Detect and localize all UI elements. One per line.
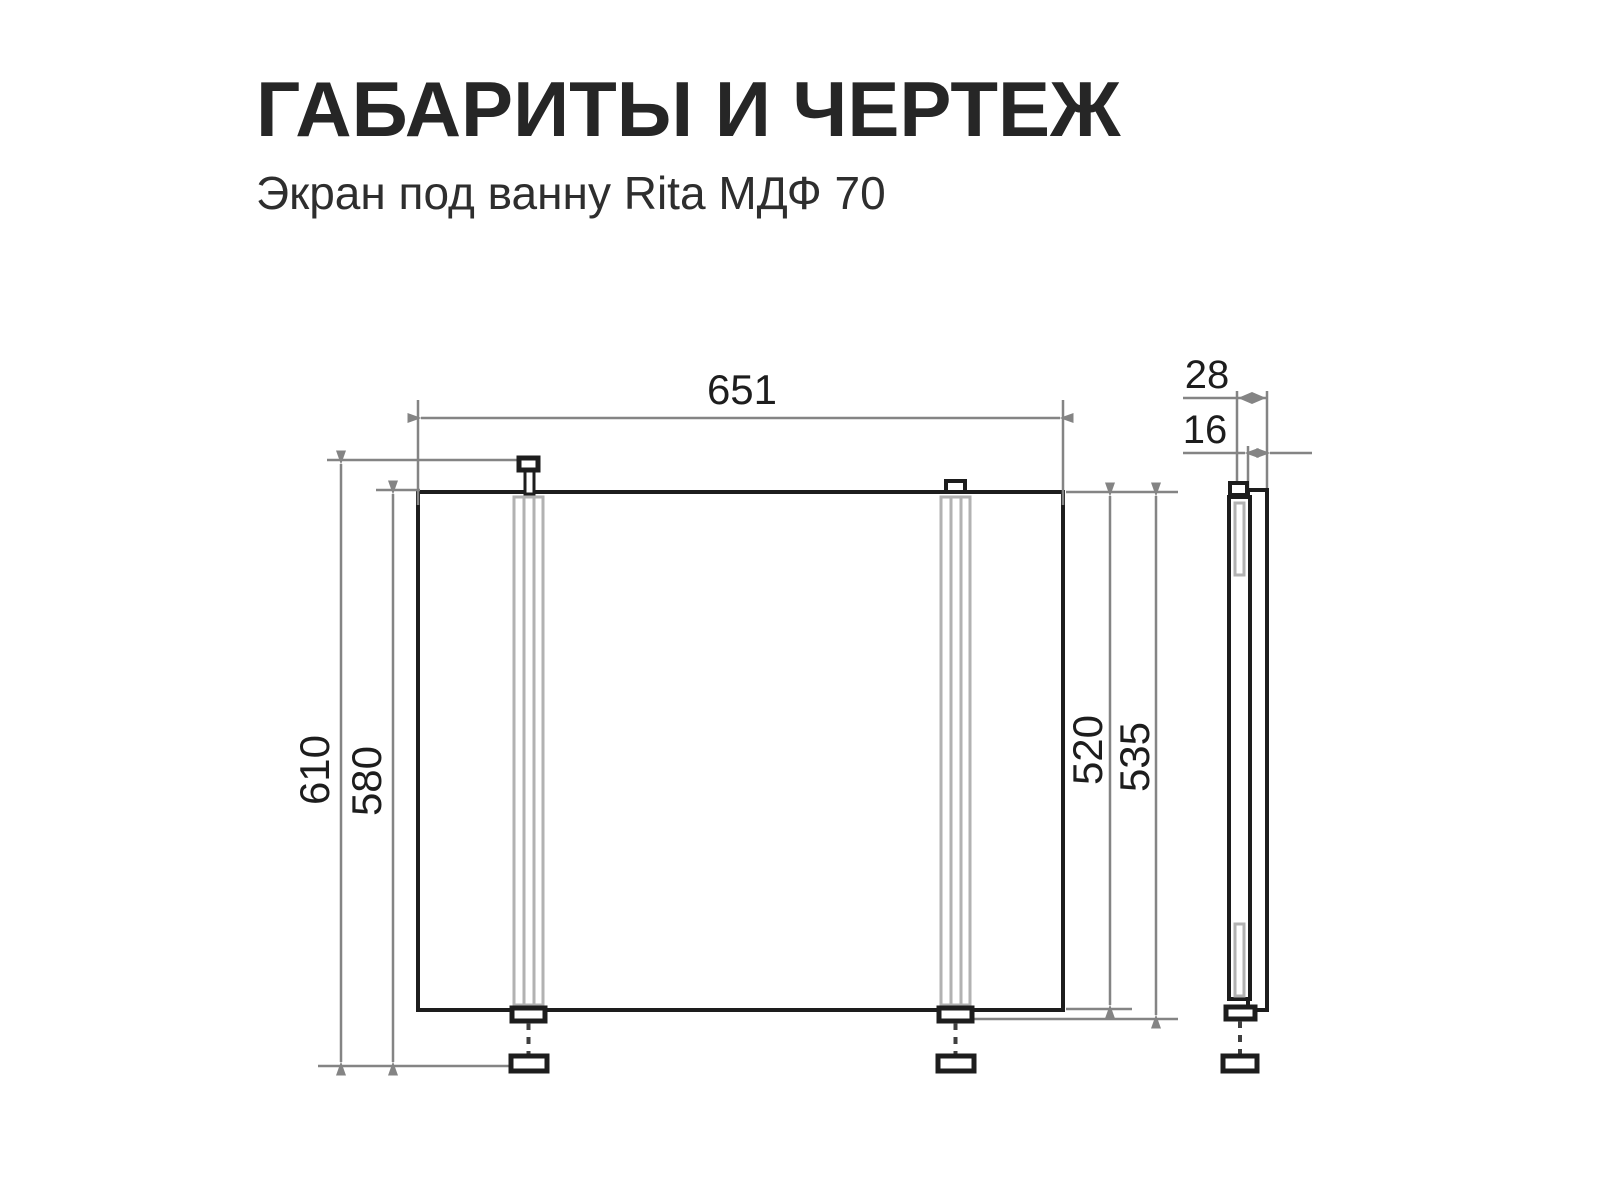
left-foot: [511, 1008, 547, 1071]
side-view: 28 16: [1183, 353, 1312, 1071]
front-view: 651 610 580 520: [291, 366, 1178, 1071]
dim-label-depth: 28: [1185, 353, 1230, 397]
foot-bracket: [512, 1008, 545, 1021]
dim-label-height-with-bracket: 535: [1111, 722, 1158, 792]
foot-pad: [938, 1056, 974, 1071]
right-foot: [938, 1008, 974, 1071]
dim-label-width: 651: [707, 366, 777, 413]
dim-label-overall-height: 610: [291, 735, 338, 805]
drawing-page: ГАБАРИТЫ И ЧЕРТЕЖ Экран под ванну Rita М…: [0, 0, 1600, 1200]
foot-bracket: [939, 1008, 972, 1021]
dim-label-screen-height: 580: [343, 746, 390, 816]
dim-diamond-arrow: [1238, 392, 1266, 404]
right-adjuster-screw: [946, 481, 965, 492]
foot-pad: [511, 1056, 547, 1071]
side-adjuster-screw: [1230, 483, 1247, 495]
foot-pad: [1223, 1056, 1257, 1071]
technical-drawing: 651 610 580 520: [0, 0, 1600, 1200]
left-adjuster-screw: [519, 458, 538, 494]
foot-bracket: [1226, 1007, 1255, 1019]
dim-label-thickness: 16: [1183, 408, 1228, 452]
dim-label-panel-height: 520: [1064, 715, 1111, 785]
screw-head: [519, 458, 538, 470]
side-foot: [1223, 1007, 1257, 1071]
